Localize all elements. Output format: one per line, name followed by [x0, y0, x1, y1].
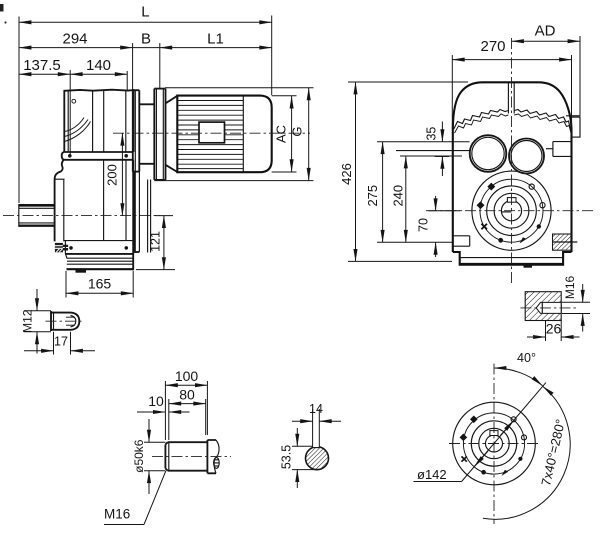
- svg-text:ø50k6: ø50k6: [132, 439, 146, 473]
- svg-text:AC: AC: [274, 125, 289, 143]
- svg-text:240: 240: [391, 185, 406, 207]
- svg-text:10: 10: [148, 393, 164, 409]
- svg-text:165: 165: [88, 276, 112, 292]
- svg-text:B: B: [141, 31, 151, 48]
- svg-text:AD: AD: [535, 23, 556, 40]
- svg-text:M16: M16: [563, 276, 577, 300]
- svg-text:ø142: ø142: [417, 467, 447, 482]
- svg-text:17: 17: [54, 335, 68, 349]
- svg-text:14: 14: [309, 402, 323, 416]
- svg-text:80: 80: [179, 387, 195, 403]
- svg-text:L: L: [141, 4, 149, 21]
- svg-text:35: 35: [425, 127, 439, 141]
- svg-text:275: 275: [365, 185, 380, 207]
- svg-text:70: 70: [417, 218, 431, 232]
- svg-text:137.5: 137.5: [23, 57, 61, 74]
- svg-text:140: 140: [86, 57, 111, 74]
- svg-text:426: 426: [339, 163, 354, 185]
- svg-text:G: G: [290, 126, 305, 136]
- svg-text:40°: 40°: [517, 351, 536, 365]
- svg-text:270: 270: [480, 38, 505, 55]
- svg-text:121: 121: [149, 231, 163, 252]
- svg-text:53.5: 53.5: [280, 445, 294, 469]
- svg-text:M16: M16: [104, 507, 130, 522]
- svg-text:294: 294: [62, 31, 87, 48]
- svg-text:M12: M12: [21, 309, 35, 333]
- svg-text:200: 200: [105, 164, 120, 186]
- svg-text:L1: L1: [207, 31, 224, 48]
- svg-text:100: 100: [175, 368, 199, 384]
- svg-text:26: 26: [546, 321, 562, 337]
